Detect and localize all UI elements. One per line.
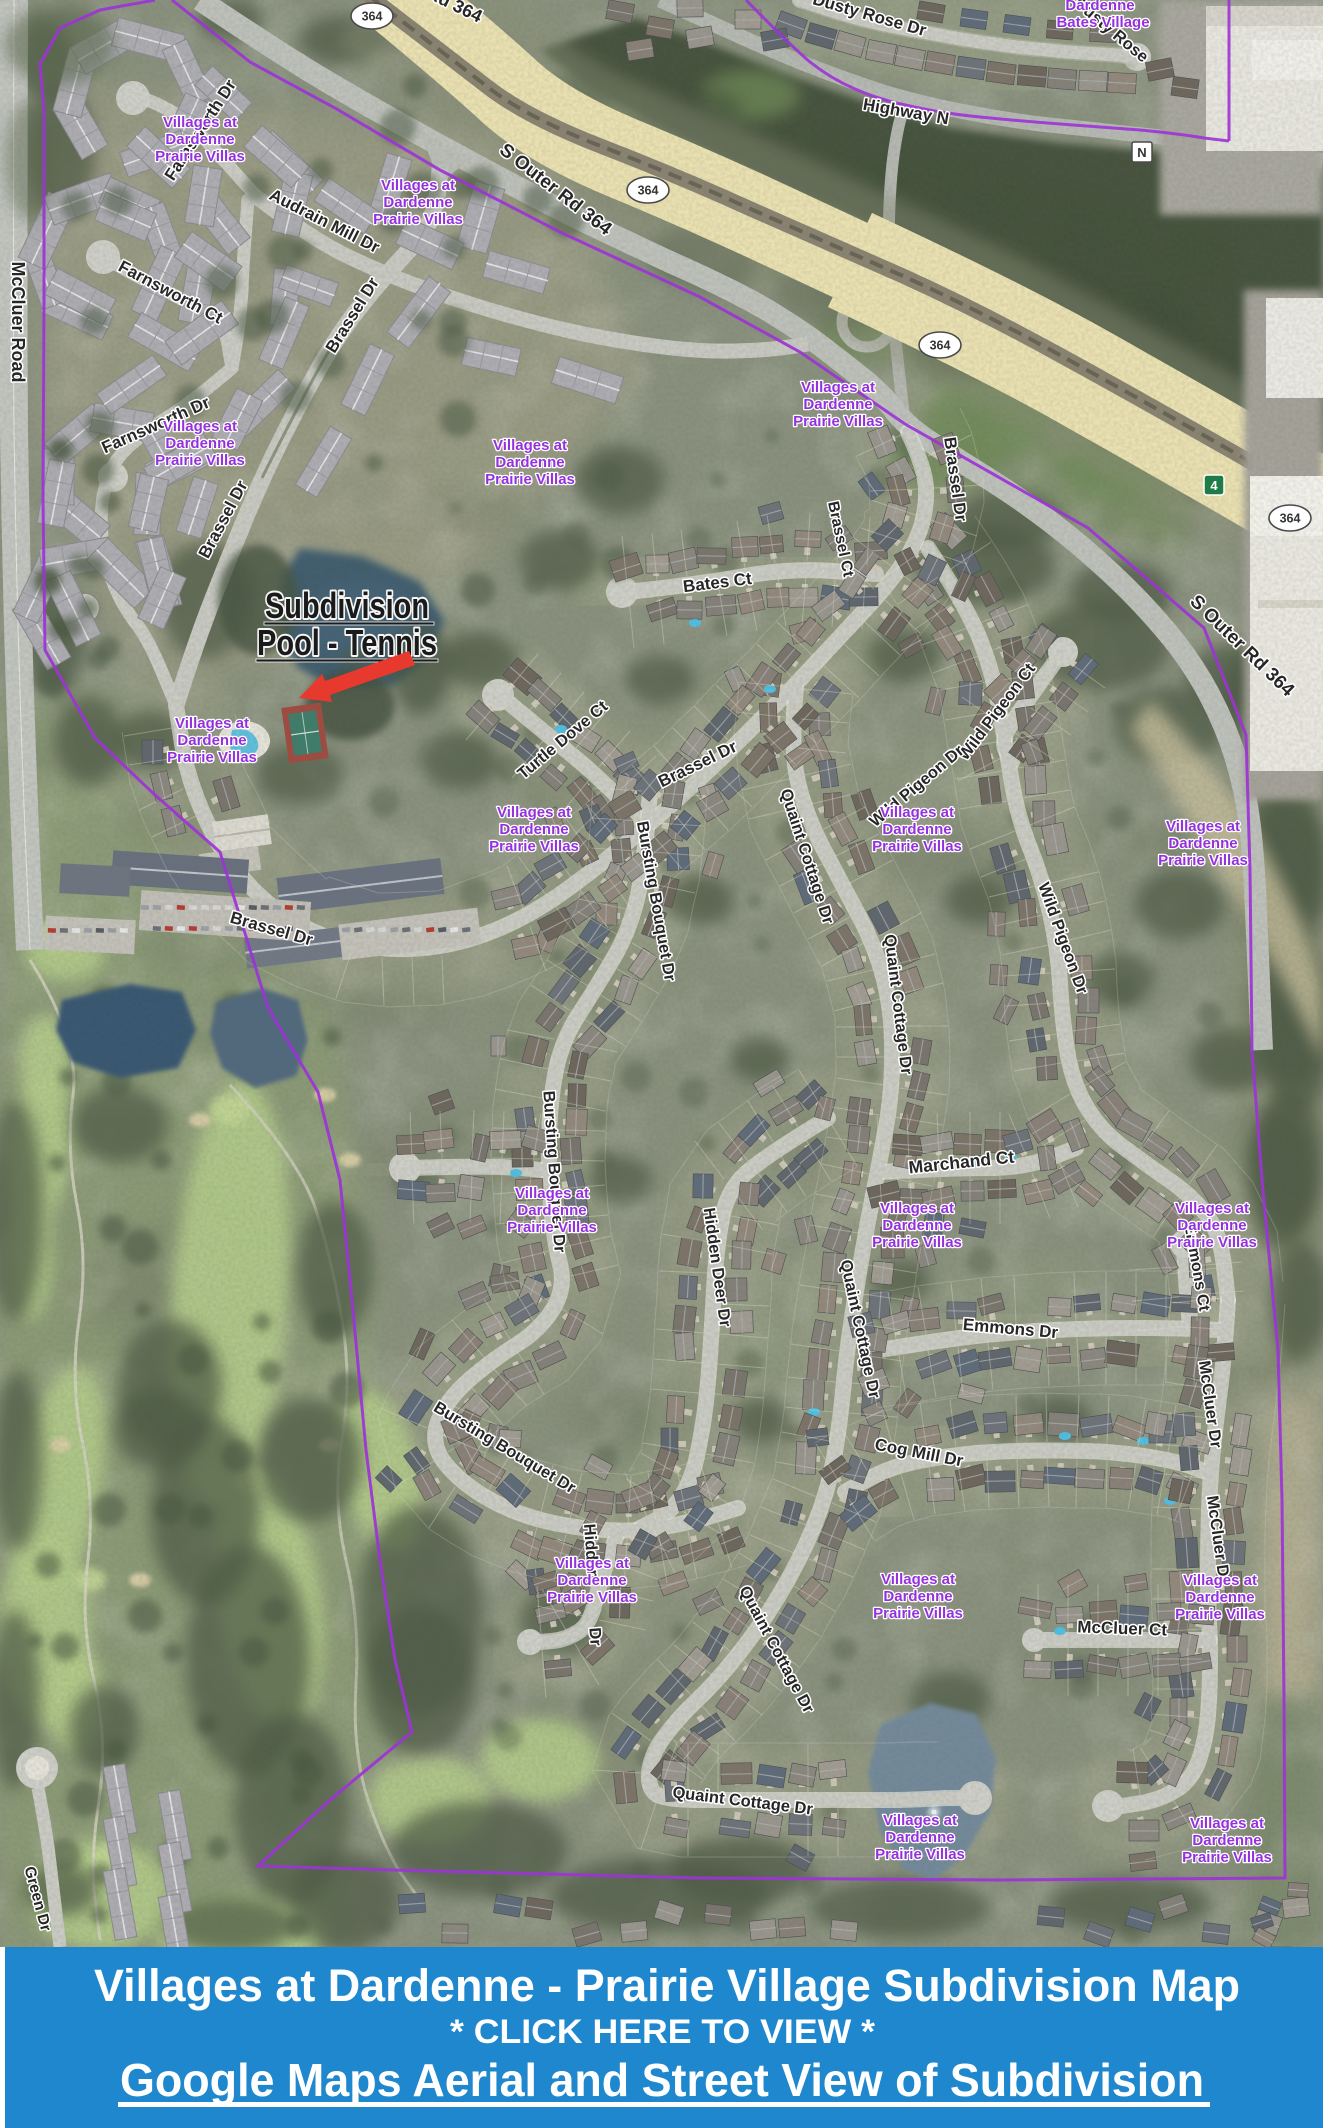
svg-text:Villages at: Villages at (883, 1812, 957, 1829)
svg-text:Prairie Villas: Prairie Villas (547, 1589, 637, 1606)
svg-text:Dardenne: Dardenne (495, 454, 564, 471)
svg-text:Dr: Dr (585, 1627, 604, 1647)
svg-text:Villages at: Villages at (880, 804, 954, 821)
svg-text:Prairie Villas: Prairie Villas (1175, 1606, 1265, 1623)
svg-text:N: N (1137, 145, 1146, 160)
svg-text:Prairie Villas: Prairie Villas (507, 1219, 597, 1236)
svg-text:Villages at: Villages at (555, 1555, 629, 1572)
svg-text:Dardenne: Dardenne (557, 1572, 626, 1589)
svg-text:Dardenne: Dardenne (882, 1217, 951, 1234)
svg-text:Prairie Villas: Prairie Villas (155, 148, 245, 165)
svg-text:Dardenne: Dardenne (1185, 1589, 1254, 1606)
svg-text:Dardenne: Dardenne (499, 821, 568, 838)
svg-text:Prairie Villas: Prairie Villas (872, 838, 962, 855)
svg-text:Dardenne: Dardenne (883, 1588, 952, 1605)
svg-text:Prairie Villas: Prairie Villas (1158, 852, 1248, 869)
svg-text:Dardenne: Dardenne (165, 435, 234, 452)
svg-text:364: 364 (362, 10, 383, 24)
svg-text:Villages at: Villages at (493, 437, 567, 454)
svg-text:* CLICK HERE TO VIEW *: * CLICK HERE TO VIEW * (450, 2013, 876, 2051)
svg-text:Villages at: Villages at (163, 114, 237, 131)
svg-text:4: 4 (1210, 478, 1218, 493)
svg-text:Prairie Villas: Prairie Villas (875, 1846, 965, 1863)
svg-text:Prairie Villas: Prairie Villas (167, 749, 257, 766)
svg-text:Villages at: Villages at (175, 715, 249, 732)
svg-text:Dardenne: Dardenne (1177, 1217, 1246, 1234)
svg-text:Dardenne: Dardenne (383, 194, 452, 211)
svg-text:Villages at: Villages at (1190, 1815, 1264, 1832)
svg-text:Prairie Villas: Prairie Villas (873, 1605, 963, 1622)
svg-text:Prairie Villas: Prairie Villas (155, 452, 245, 469)
svg-text:Prairie Villas: Prairie Villas (489, 838, 579, 855)
svg-text:Prairie Villas: Prairie Villas (872, 1234, 962, 1251)
svg-text:Dardenne: Dardenne (803, 396, 872, 413)
svg-text:Google Maps Aerial and Street: Google Maps Aerial and Street View of Su… (120, 2054, 1204, 2106)
svg-text:Villages at: Villages at (497, 804, 571, 821)
svg-text:364: 364 (930, 339, 951, 353)
svg-text:Villages at: Villages at (515, 1185, 589, 1202)
svg-text:Subdivision: Subdivision (265, 585, 429, 626)
svg-text:Villages at: Villages at (801, 379, 875, 396)
svg-text:McCluer Road: McCluer Road (8, 261, 28, 382)
svg-text:Prairie Villas: Prairie Villas (1167, 1234, 1257, 1251)
svg-text:Dardenne: Dardenne (517, 1202, 586, 1219)
svg-text:Villages at: Villages at (1166, 818, 1240, 835)
svg-text:Dardenne: Dardenne (177, 732, 246, 749)
svg-text:McCluer Ct: McCluer Ct (1077, 1617, 1168, 1639)
svg-text:Dardenne: Dardenne (165, 131, 234, 148)
svg-text:Dardenne: Dardenne (1065, 0, 1134, 14)
svg-text:Villages at: Villages at (381, 177, 455, 194)
svg-text:Villages at: Villages at (881, 1571, 955, 1588)
svg-text:Dardenne: Dardenne (1192, 1832, 1261, 1849)
svg-text:Prairie Villas: Prairie Villas (373, 211, 463, 228)
svg-text:Villages at: Villages at (163, 418, 237, 435)
svg-text:Dardenne: Dardenne (1168, 835, 1237, 852)
svg-text:Prairie Villas: Prairie Villas (1182, 1849, 1272, 1866)
svg-text:Villages at: Villages at (1175, 1200, 1249, 1217)
svg-text:Prairie Villas: Prairie Villas (485, 471, 575, 488)
svg-text:Dardenne: Dardenne (885, 1829, 954, 1846)
svg-text:Villages at Dardenne - Prairie: Villages at Dardenne - Prairie Village S… (94, 1960, 1240, 2011)
svg-text:Villages at: Villages at (1183, 1572, 1257, 1589)
svg-text:Villages at: Villages at (880, 1200, 954, 1217)
svg-text:364: 364 (638, 184, 659, 198)
svg-text:Bates Village: Bates Village (1056, 14, 1149, 31)
svg-text:Prairie Villas: Prairie Villas (793, 413, 883, 430)
svg-text:364: 364 (1280, 512, 1301, 526)
svg-text:Dardenne: Dardenne (882, 821, 951, 838)
